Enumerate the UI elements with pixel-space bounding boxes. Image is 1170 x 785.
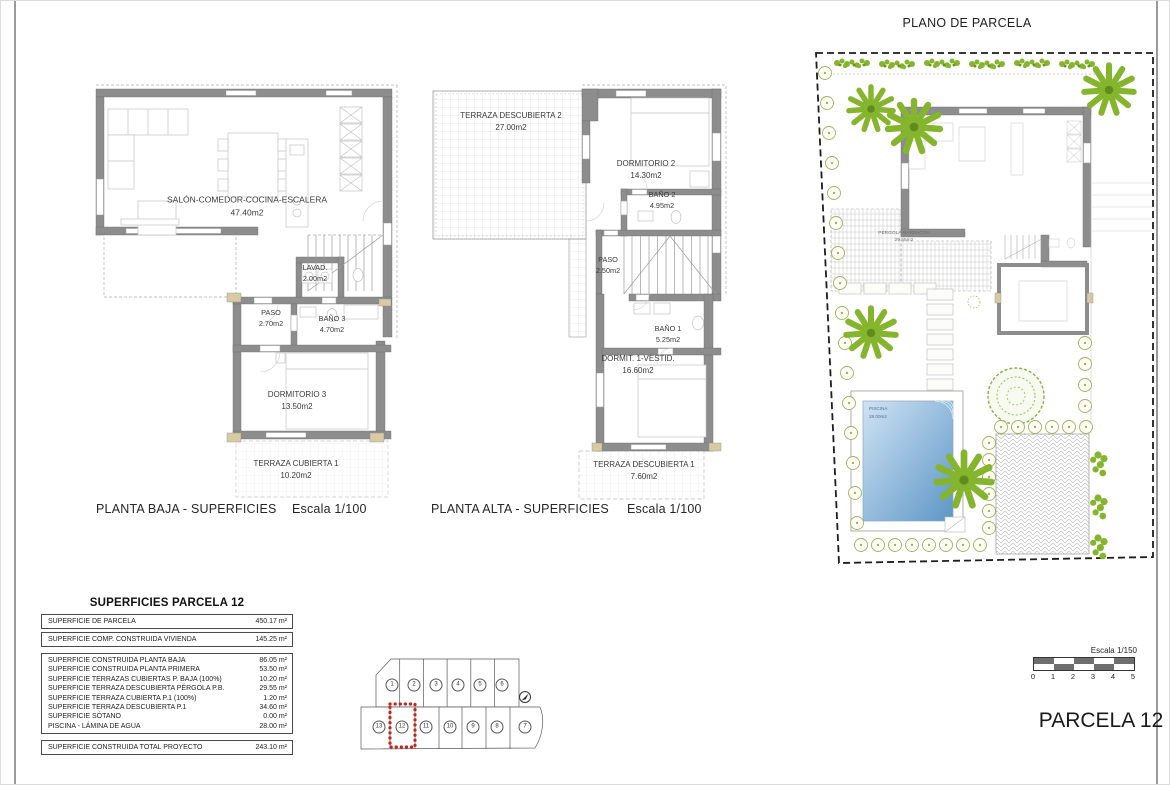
parcel-number-3: 3 <box>430 679 443 692</box>
alta-stairs <box>624 236 716 294</box>
areas-table: SUPERFICIES PARCELA 12 SUPERFICIE DE PAR… <box>41 597 293 755</box>
table-row: SUPERFICIE TERRAZA DESCUBIERTA P.134.60 … <box>42 703 292 712</box>
parcel-number-12: 12 <box>396 721 409 734</box>
baja-furniture <box>108 107 378 429</box>
frame-line-left <box>14 1 16 785</box>
table-row-total: SUPERFICIE CONSTRUIDA TOTAL PROYECTO243.… <box>41 740 293 755</box>
room-label-lavadero: LAVAD. 2.00m2 <box>303 263 328 285</box>
paved-hatch-area <box>996 434 1089 554</box>
parcel-number-2: 2 <box>408 679 421 692</box>
shrub-strip-right <box>1090 451 1108 559</box>
bush-column-right <box>1079 337 1092 413</box>
table-row: SUPERFICIE SÓTANO0.00 m² <box>42 712 292 721</box>
caption-planta-baja-scale: Escala 1/100 <box>292 502 367 516</box>
table-group-detail: SUPERFICIE CONSTRUIDA PLANTA BAJA86.05 m… <box>41 653 293 734</box>
parcel-number-5: 5 <box>474 679 487 692</box>
parcel-number-10: 10 <box>444 721 457 734</box>
north-arrow-icon <box>517 689 533 705</box>
table-row: SUPERFICIE TERRAZA DESCUBIERTA PÉRGOLA P… <box>42 684 292 693</box>
table-row: SUPERFICIE CONSTRUIDA PLANTA BAJA86.05 m… <box>42 656 292 665</box>
big-bush <box>988 368 1044 424</box>
table-row: PISCINA - LÁMINA DE AGUA28.00 m² <box>42 722 292 731</box>
scale-bar-ticks: 0 1 2 3 4 5 <box>1033 672 1137 682</box>
parcel-number-6: 6 <box>496 679 509 692</box>
parcel-number-1: 1 <box>386 679 399 692</box>
floorplan-planta-alta <box>426 83 736 509</box>
table-row-vivienda: SUPERFICIE COMP. CONSTRUIDA VIVIENDA145.… <box>41 632 293 647</box>
label-piscina: PISCINA 28.00m2 <box>869 405 887 422</box>
hedge-row <box>829 59 1101 75</box>
table-row: SUPERFICIE CONSTRUIDA PLANTA PRIMERA53.5… <box>42 665 292 674</box>
parcel-number-11: 11 <box>420 721 433 734</box>
flower-circle <box>968 296 980 308</box>
room-label-bano1: BAÑO 1 5.25m2 <box>655 324 682 346</box>
bush-column-left <box>819 67 864 530</box>
room-label-dormitorio3: DORMITORIO 3 13.50m2 <box>268 389 327 413</box>
table-row: SUPERFICIE TERRAZA CUBIERTA P.1 (100%)1.… <box>42 694 292 703</box>
room-label-paso-baja: PASO 2.70m2 <box>259 308 283 330</box>
parcela-12-label: PARCELA 12 <box>1039 709 1164 733</box>
alta-furniture <box>631 98 709 437</box>
table-row-parcela: SUPERFICIE DE PARCELA450.17 m² <box>41 614 293 629</box>
room-label-terraza-cubierta1: TERRAZA CUBIERTA 1 10.20m2 <box>253 458 338 482</box>
paved-walk-right <box>1091 119 1153 433</box>
site-plan-title: PLANO DE PARCELA <box>903 16 1032 30</box>
scale-bar-graphic <box>1033 657 1135 671</box>
caption-planta-baja: PLANTA BAJA - SUPERFICIES <box>96 502 277 516</box>
room-label-bano3: BAÑO 3 4.70m2 <box>319 314 346 336</box>
room-label-terraza-descubierta2: TERRAZA DESCUBIERTA 2 27.00m2 <box>460 110 562 134</box>
scale-bar-label: Escala 1/150 <box>1033 646 1137 655</box>
floorplan-planta-baja <box>86 83 406 509</box>
bush-column-hatch-left <box>983 437 996 535</box>
parcel-number-13: 13 <box>373 721 386 734</box>
plan-sheet: 1 2 3 4 5 6 13 12 11 10 9 8 7 SALÓN-COME… <box>0 0 1170 785</box>
room-label-paso-alta: PASO 2.50m2 <box>596 255 620 277</box>
table-row: SUPERFICIE TERRAZAS CUBIERTAS P. BAJA (1… <box>42 675 292 684</box>
room-label-dormitorio2: DORMITORIO 2 14.30m2 <box>617 158 676 182</box>
bush-row-bottom <box>855 539 987 552</box>
room-label-salon: SALÓN-COMEDOR-COCINA-ESCALERA 47.40m2 <box>167 193 327 219</box>
room-label-bano2: BAÑO 2 4.95m2 <box>649 190 676 212</box>
room-label-terraza-descubierta1: TERRAZA DESCUBIERTA 1 7.60m2 <box>593 459 695 483</box>
caption-planta-alta-scale: Escala 1/100 <box>627 502 702 516</box>
parcel-number-7: 7 <box>519 721 532 734</box>
parcel-number-4: 4 <box>452 679 465 692</box>
label-pergola-barbacoa: PÉRGOLA-BARBACOA 29.55m2 <box>878 230 929 244</box>
key-plan <box>359 641 569 763</box>
parcel-number-9: 9 <box>467 721 480 734</box>
room-label-dormit1-vestidor: DORMIT. 1-VESTID. 16.60m2 <box>601 353 674 377</box>
pergola-area <box>831 209 991 291</box>
caption-planta-alta: PLANTA ALTA - SUPERFICIES <box>431 502 609 516</box>
areas-table-title: SUPERFICIES PARCELA 12 <box>41 597 293 609</box>
site-plan <box>809 43 1161 571</box>
parcel-number-8: 8 <box>491 721 504 734</box>
scale-bar: Escala 1/150 0 1 2 3 4 5 <box>1033 646 1137 682</box>
